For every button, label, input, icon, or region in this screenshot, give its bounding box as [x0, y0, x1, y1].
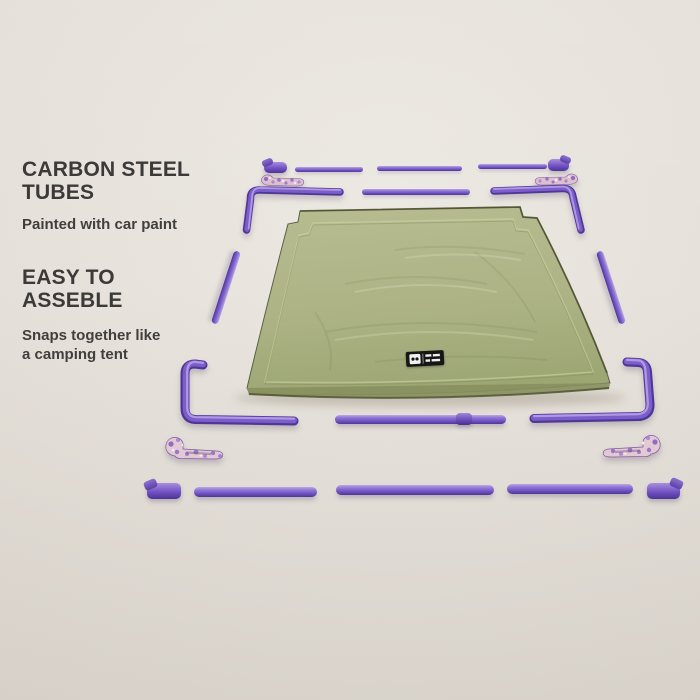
snap-clip-bottom-left — [147, 483, 181, 499]
tube-joint-sleeve — [456, 413, 472, 425]
clip-hook — [559, 154, 572, 165]
rubber-foot-bottom-left — [163, 430, 229, 460]
heading-easy-to-assemble: EASY TO ASSEBLE — [22, 266, 123, 312]
frame-tube-bottom-2 — [336, 485, 494, 495]
brand-logo-icon — [409, 352, 442, 365]
frame-tube-top-2 — [377, 166, 462, 171]
product-infographic: CARBON STEEL TUBES Painted with car pain… — [0, 0, 700, 700]
heading-line: CARBON STEEL — [22, 158, 190, 181]
corner-tube-bottom-right — [526, 352, 660, 432]
frame-tube-mid-top — [362, 189, 470, 195]
clip-hook — [261, 157, 274, 168]
brand-label — [406, 350, 445, 367]
body-line: Painted with car paint — [22, 215, 177, 234]
frame-tube-mid-bottom — [335, 415, 506, 424]
heading-line: TUBES — [22, 181, 190, 204]
rubber-foot-bottom-right — [597, 428, 663, 458]
body-line: Snaps together like — [22, 326, 160, 345]
heading-carbon-steel-tubes: CARBON STEEL TUBES — [22, 158, 190, 204]
body-snaps-together: Snaps together like a camping tent — [22, 326, 160, 364]
clip-hook — [143, 478, 159, 492]
corner-tube-bottom-left — [174, 352, 304, 432]
frame-tube-top-3 — [478, 164, 547, 169]
heading-line: ASSEBLE — [22, 289, 123, 312]
frame-tube-bottom-1 — [194, 487, 317, 497]
corner-tube-top-right — [486, 180, 596, 240]
corner-tube-top-left — [236, 180, 346, 240]
body-car-paint: Painted with car paint — [22, 215, 177, 234]
body-line: a camping tent — [22, 345, 160, 364]
heading-line: EASY TO — [22, 266, 123, 289]
snap-clip-bottom-right — [647, 483, 680, 499]
clip-hook — [669, 477, 685, 491]
frame-tube-bottom-3 — [507, 484, 633, 494]
